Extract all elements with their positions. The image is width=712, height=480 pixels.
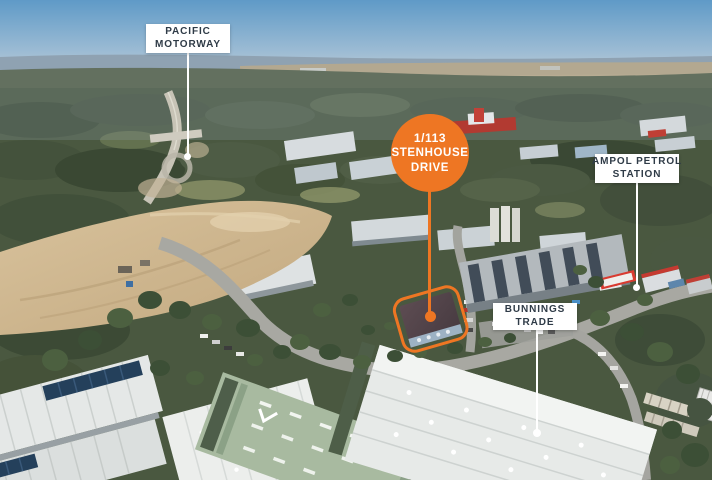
aerial-photo: PACIFIC MOTORWAY AMPOL PETROL STATION BU…: [0, 0, 712, 480]
bunnings-leader-line: [536, 330, 538, 431]
motorway-leader-line: [187, 53, 189, 155]
property-badge-street: STENHOUSE: [392, 146, 469, 161]
ampol-label-line1: AMPOL PETROL: [592, 156, 682, 169]
label-ampol-petrol-station: AMPOL PETROL STATION: [595, 154, 679, 183]
ampol-leader-dot: [633, 284, 640, 291]
motorway-label-line1: PACIFIC: [165, 26, 211, 39]
motorway-label-line2: MOTORWAY: [155, 39, 221, 52]
bunnings-leader-dot: [533, 429, 541, 437]
property-leader-line: [428, 189, 431, 317]
property-badge-unit: 1/113: [414, 131, 446, 146]
motorway-leader-dot: [184, 153, 191, 160]
bunnings-label-line2: TRADE: [516, 317, 555, 330]
bunnings-label-line1: BUNNINGS: [505, 304, 566, 317]
property-badge-street2: DRIVE: [411, 161, 449, 176]
property-leader-dot: [425, 311, 436, 322]
ampol-leader-line: [636, 183, 638, 286]
label-pacific-motorway: PACIFIC MOTORWAY: [146, 24, 230, 53]
property-badge: 1/113 STENHOUSE DRIVE: [391, 114, 469, 192]
label-bunnings-trade: BUNNINGS TRADE: [493, 303, 577, 330]
ampol-label-line2: STATION: [613, 169, 662, 182]
aerial-photo-art: [0, 0, 712, 480]
